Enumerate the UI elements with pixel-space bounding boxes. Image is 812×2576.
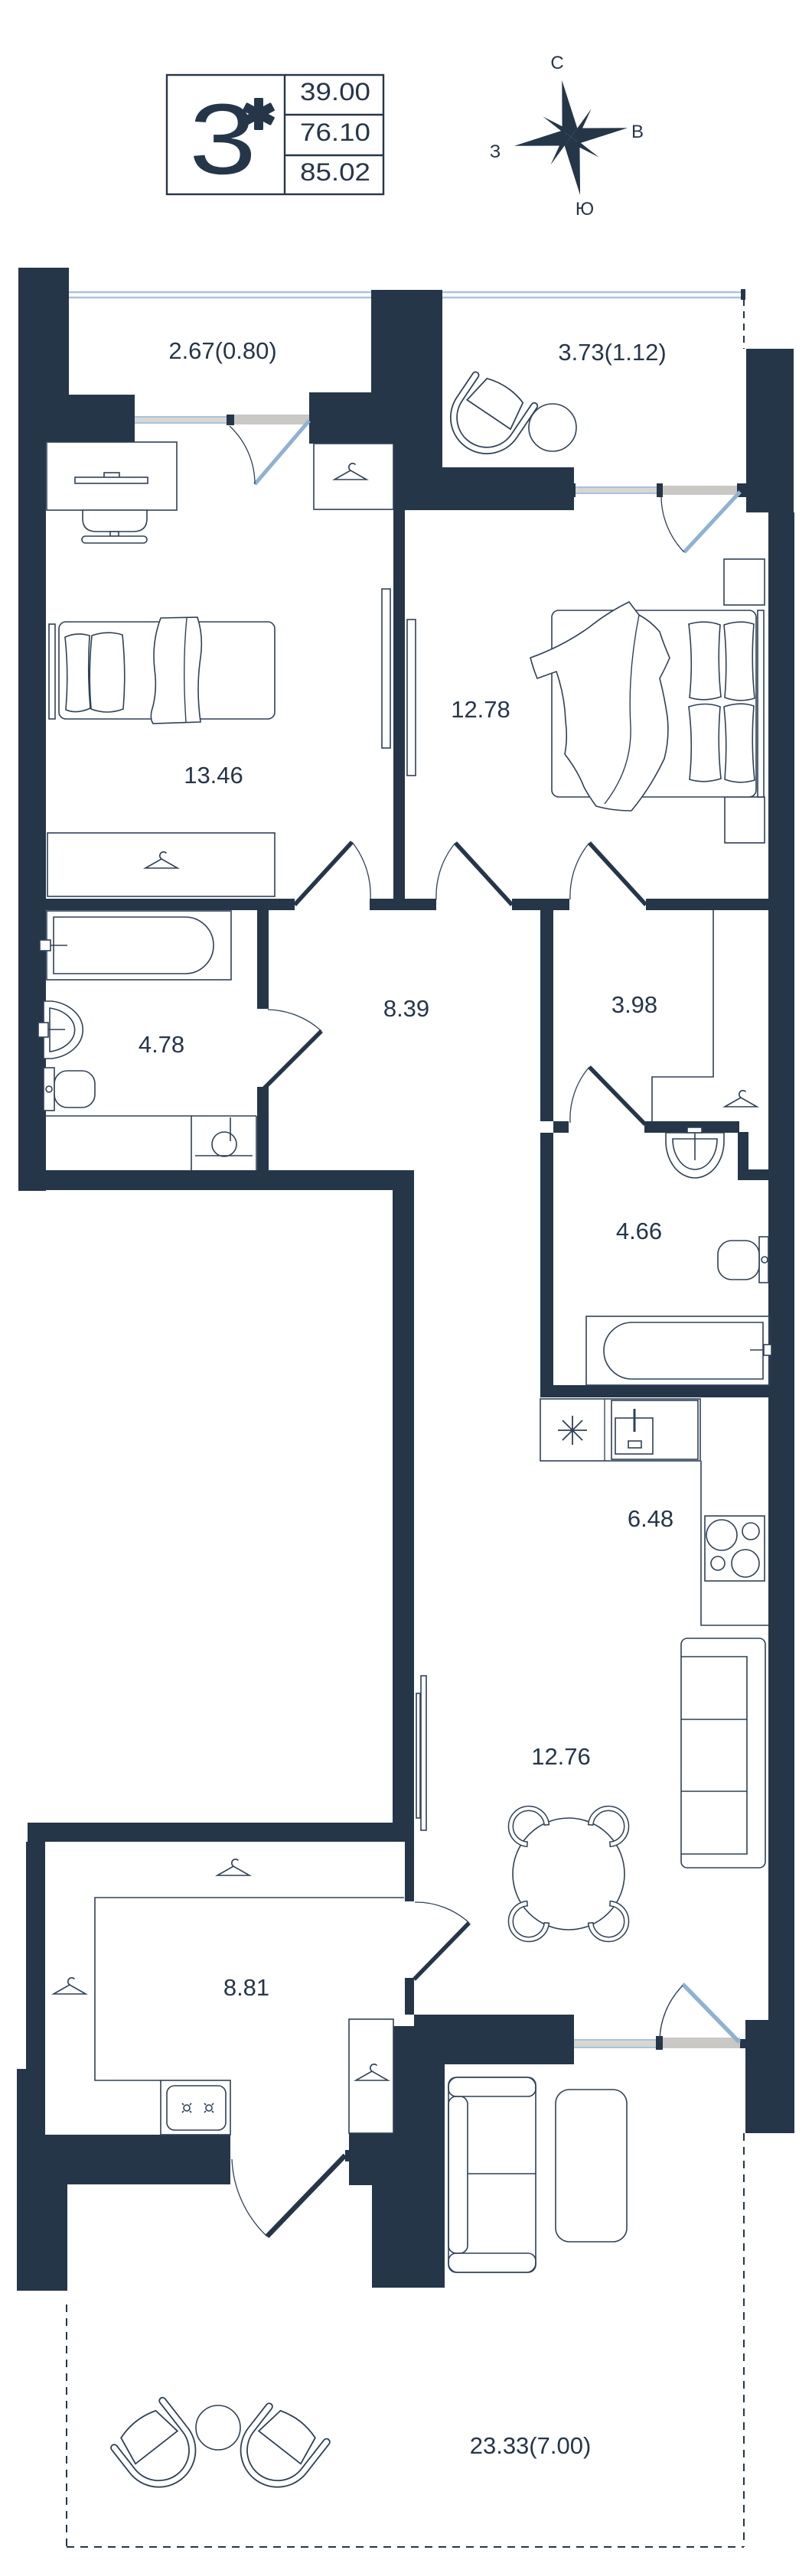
- svg-text:8.39: 8.39: [383, 995, 429, 1022]
- svg-text:4.66: 4.66: [616, 1218, 662, 1244]
- svg-text:Ю: Ю: [576, 199, 594, 220]
- svg-text:2.67(0.80): 2.67(0.80): [168, 337, 276, 364]
- svg-text:85.02: 85.02: [300, 158, 370, 186]
- svg-text:4.78: 4.78: [139, 1031, 184, 1058]
- svg-text:23.33(7.00): 23.33(7.00): [470, 2432, 592, 2459]
- svg-text:12.78: 12.78: [451, 696, 510, 723]
- svg-text:13.46: 13.46: [184, 762, 243, 789]
- svg-text:8.81: 8.81: [223, 1974, 269, 2001]
- svg-text:12.76: 12.76: [531, 1743, 591, 1770]
- svg-text:3.73(1.12): 3.73(1.12): [558, 339, 666, 366]
- svg-text:З: З: [490, 141, 501, 162]
- svg-text:В: В: [631, 122, 644, 142]
- svg-text:С: С: [550, 53, 563, 73]
- svg-text:3: 3: [189, 83, 256, 195]
- svg-text:3.98: 3.98: [611, 991, 657, 1018]
- svg-text:6.48: 6.48: [628, 1505, 673, 1532]
- svg-text:39.00: 39.00: [300, 78, 370, 106]
- svg-text:76.10: 76.10: [300, 119, 370, 146]
